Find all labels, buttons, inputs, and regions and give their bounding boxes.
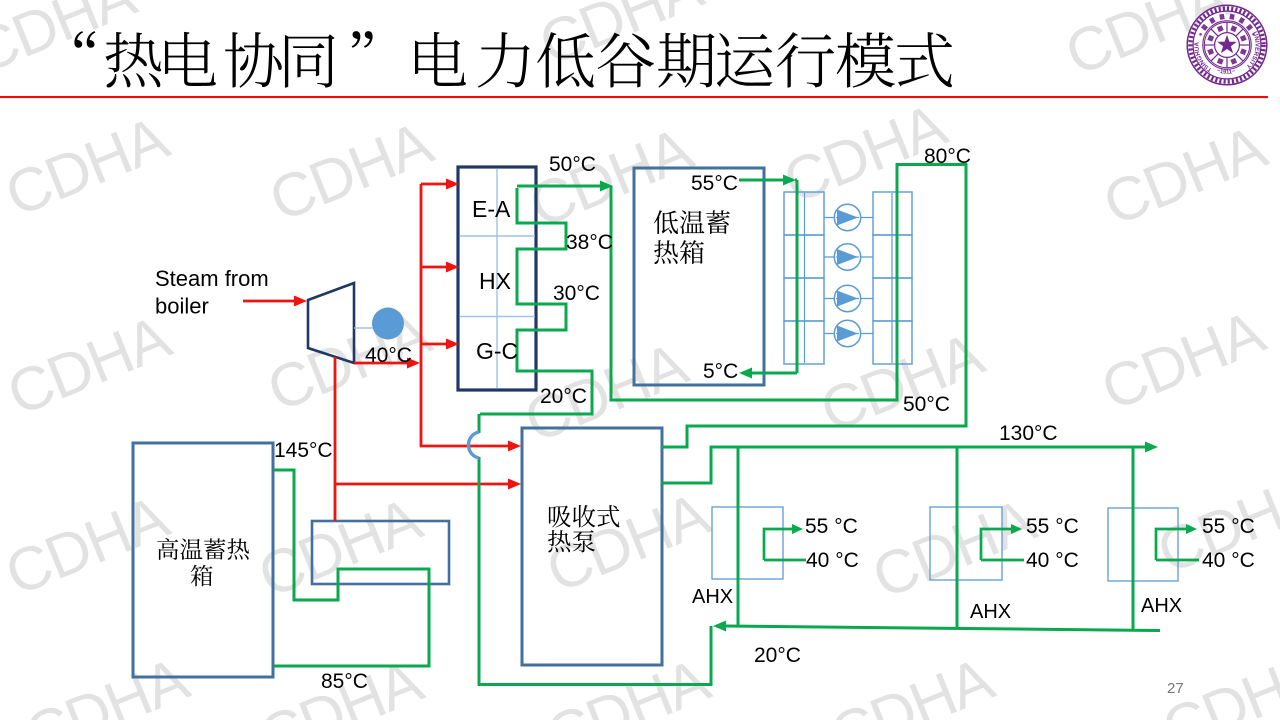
svg-text:Steam from: Steam from bbox=[155, 266, 269, 291]
svg-text:AHX: AHX bbox=[1141, 595, 1182, 617]
svg-text:E-A: E-A bbox=[472, 196, 511, 222]
svg-text:40 °C: 40 °C bbox=[806, 549, 859, 572]
svg-text:30°C: 30°C bbox=[553, 282, 600, 305]
svg-text:20°C: 20°C bbox=[540, 385, 587, 408]
svg-text:AHX: AHX bbox=[692, 586, 733, 608]
svg-text:5°C: 5°C bbox=[703, 360, 738, 383]
svg-text:40 °C: 40 °C bbox=[1026, 549, 1079, 572]
svg-text:50°C: 50°C bbox=[903, 393, 950, 416]
svg-text:50°C: 50°C bbox=[549, 153, 596, 176]
svg-text:HX: HX bbox=[479, 268, 511, 294]
svg-text:G-C: G-C bbox=[476, 338, 518, 364]
svg-text:38°C: 38°C bbox=[566, 231, 613, 254]
svg-text:AHX: AHX bbox=[970, 601, 1011, 623]
svg-text:145°C: 145°C bbox=[274, 439, 333, 462]
svg-text:55 °C: 55 °C bbox=[1026, 515, 1079, 538]
svg-text:80°C: 80°C bbox=[924, 145, 971, 168]
svg-text:130°C: 130°C bbox=[999, 422, 1058, 445]
svg-text:55°C: 55°C bbox=[691, 172, 738, 195]
svg-text:55 °C: 55 °C bbox=[805, 515, 858, 538]
svg-text:boiler: boiler bbox=[155, 294, 209, 319]
svg-text:40 °C: 40 °C bbox=[1202, 549, 1255, 572]
svg-text:40°C: 40°C bbox=[365, 344, 412, 367]
svg-text:27: 27 bbox=[1167, 680, 1184, 697]
svg-text:55 °C: 55 °C bbox=[1202, 515, 1255, 538]
svg-text:85°C: 85°C bbox=[321, 670, 368, 693]
svg-text:20°C: 20°C bbox=[754, 644, 801, 667]
